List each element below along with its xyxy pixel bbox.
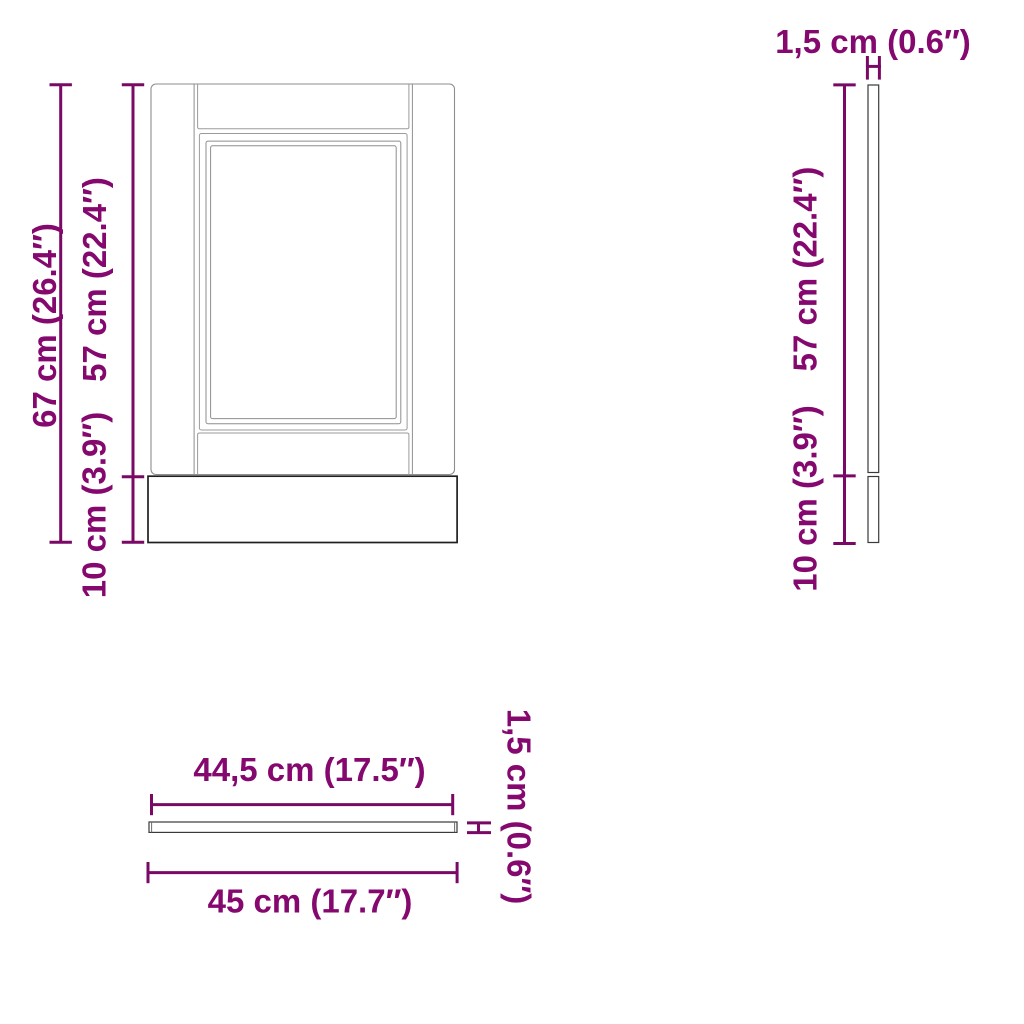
svg-text:45 cm (17.7″): 45 cm (17.7″): [208, 883, 413, 920]
svg-text:1,5 cm (0.6″): 1,5 cm (0.6″): [501, 709, 538, 905]
svg-text:10 cm (3.9″): 10 cm (3.9″): [787, 405, 824, 591]
svg-text:67 cm (26.4″): 67 cm (26.4″): [26, 223, 63, 428]
svg-text:44,5 cm (17.5″): 44,5 cm (17.5″): [193, 751, 425, 788]
svg-text:10 cm (3.9″): 10 cm (3.9″): [76, 412, 113, 598]
svg-text:57 cm (22.4″): 57 cm (22.4″): [76, 177, 113, 382]
svg-text:1,5 cm (0.6″): 1,5 cm (0.6″): [775, 23, 971, 60]
svg-text:57 cm (22.4″): 57 cm (22.4″): [787, 167, 824, 372]
